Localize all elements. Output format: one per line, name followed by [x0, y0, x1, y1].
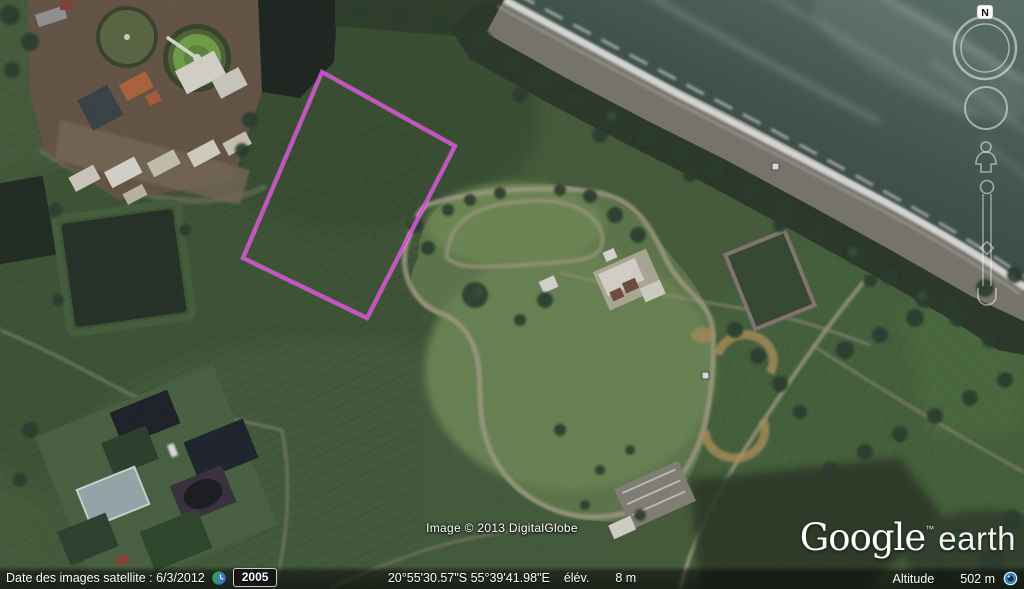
north-up-button[interactable]: N — [977, 5, 993, 19]
zoom-out-button[interactable] — [978, 288, 996, 305]
logo-google: Google — [800, 516, 926, 559]
zoom-in-button[interactable] — [981, 181, 994, 194]
altitude-value: 502 m — [960, 572, 995, 586]
pegman[interactable] — [976, 142, 996, 172]
satellite-map[interactable] — [0, 0, 1024, 589]
status-bar: Date des images satellite : 6/3/2012 200… — [0, 566, 1024, 589]
imagery-date-label: Date des images satellite : 6/3/2012 — [6, 571, 205, 585]
rotate-ring[interactable] — [954, 17, 1016, 79]
imagery-copyright: Image © 2013 DigitalGlobe — [392, 521, 612, 535]
rotate-ring-inner[interactable] — [961, 24, 1009, 72]
elevation-value: 8 m — [615, 571, 636, 585]
time-slider-year[interactable]: 2005 — [233, 568, 278, 587]
historical-imagery-icon[interactable] — [211, 570, 227, 586]
svg-text:N: N — [981, 7, 989, 19]
google-earth-logo: Google™earth — [800, 516, 1016, 559]
look-joystick[interactable] — [965, 87, 1007, 129]
logo-tm: ™ — [925, 524, 934, 534]
streaming-indicator-icon — [1003, 571, 1018, 586]
navigation-controls: N — [944, 0, 1024, 330]
grain-light — [0, 0, 1024, 589]
altitude-label: Altitude — [893, 572, 935, 586]
zoom-slider[interactable] — [978, 181, 996, 306]
logo-earth: earth — [938, 520, 1016, 557]
coordinates-label: 20°55'30.57"S 55°39'41.98"E — [388, 571, 550, 585]
elevation-label: élév. — [564, 571, 589, 585]
google-earth-viewport: N Image © 2013 DigitalGlobe Google™earth… — [0, 0, 1024, 589]
